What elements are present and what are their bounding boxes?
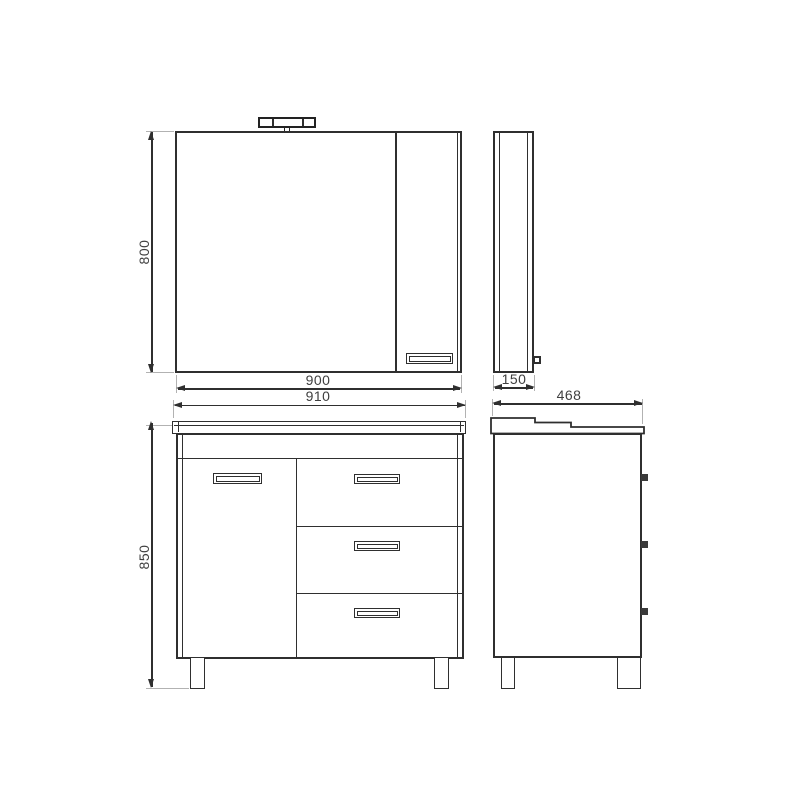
- countertop-edge-line: [174, 425, 464, 426]
- vanity-side-panel-line-left: [182, 435, 183, 657]
- arrow-left-icon: [492, 400, 501, 406]
- door-handle: [213, 473, 262, 484]
- vanity-front-outline: [176, 433, 464, 659]
- dimension-line: [494, 403, 642, 405]
- vanity-side-leg-back: [617, 658, 641, 689]
- vanity-side-outline: [493, 433, 642, 658]
- mirror-door-handle: [406, 353, 453, 364]
- dimension-line: [175, 405, 465, 407]
- vanity-front-leg-left: [190, 658, 205, 689]
- arrow-left-icon: [176, 385, 185, 391]
- door-drawer-divider: [296, 459, 298, 658]
- arrow-up-icon: [148, 131, 154, 140]
- dim-label-vanity-width: 910: [296, 389, 340, 404]
- arrow-down-icon: [148, 679, 154, 688]
- side-drawer-latch-2: [641, 541, 648, 548]
- mirror-side-panel-line-left: [499, 133, 500, 371]
- countertop-end-tick-right: [460, 422, 461, 432]
- drawer-divider-2: [297, 593, 462, 594]
- mirror-side-latch: [533, 356, 541, 364]
- vanity-side-leg-front: [501, 658, 515, 689]
- side-drawer-latch-1: [641, 474, 648, 481]
- drawer-handle-1: [354, 474, 400, 484]
- vanity-side-panel-line-right: [457, 435, 458, 657]
- dim-label-mirror-depth: 150: [494, 372, 534, 387]
- arrow-down-icon: [148, 364, 154, 373]
- lamp-section-divider-left: [272, 119, 274, 126]
- lamp-section-divider-right: [302, 119, 304, 126]
- arrow-right-icon: [453, 385, 462, 391]
- mirror-door-inner-edge: [457, 133, 458, 371]
- drawer-handle-2: [354, 541, 400, 551]
- mirror-side-panel-line-right: [527, 133, 528, 371]
- dim-label-mirror-height: 800: [136, 237, 152, 267]
- arrow-right-icon: [457, 402, 466, 408]
- mirror-door-divider: [395, 133, 397, 371]
- drawer-handle-3: [354, 608, 400, 618]
- dim-label-vanity-height: 850: [136, 542, 152, 572]
- side-drawer-latch-3: [641, 608, 648, 615]
- technical-drawing-canvas: 800 900 910 150 468: [0, 0, 800, 800]
- dim-label-vanity-depth: 468: [547, 388, 591, 403]
- vanity-apron-line: [178, 458, 462, 459]
- arrow-left-icon: [173, 402, 182, 408]
- mirror-front-outline: [175, 131, 462, 373]
- vanity-front-leg-right: [434, 658, 449, 689]
- drawer-divider-1: [297, 526, 462, 527]
- arrow-right-icon: [634, 400, 643, 406]
- countertop-end-tick-left: [178, 422, 179, 432]
- dim-label-mirror-width: 900: [296, 373, 340, 388]
- arrow-up-icon: [148, 421, 154, 430]
- extension-line: [146, 688, 189, 689]
